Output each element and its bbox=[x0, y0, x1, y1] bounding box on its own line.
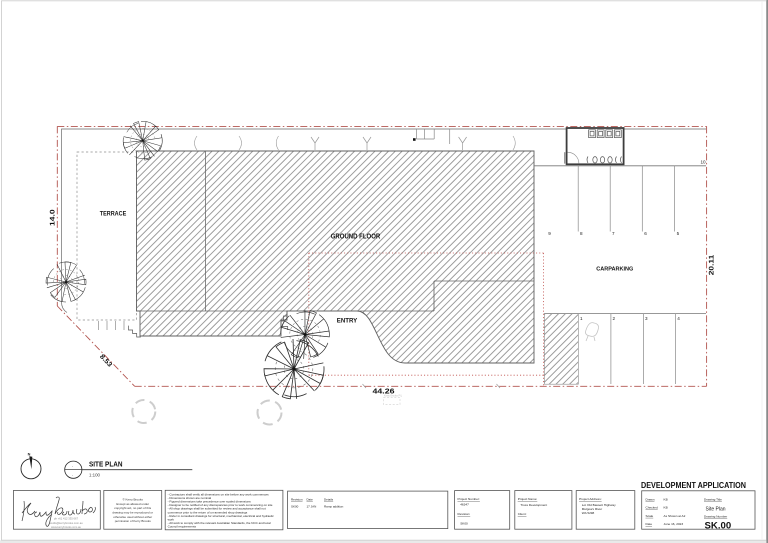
svg-text:ph +61 412 335 667: ph +61 412 335 667 bbox=[54, 517, 78, 521]
svg-text:10: 10 bbox=[701, 159, 707, 164]
svg-text:5: 5 bbox=[677, 231, 680, 236]
svg-text:20.11: 20.11 bbox=[709, 254, 716, 275]
svg-text:KB: KB bbox=[664, 506, 668, 510]
svg-text:Project Name:: Project Name: bbox=[518, 497, 538, 501]
svg-text:Truss Development: Truss Development bbox=[520, 503, 547, 507]
svg-text:Drawing Title: Drawing Title bbox=[704, 497, 722, 501]
svg-text:Client:: Client: bbox=[518, 512, 527, 516]
svg-text:Site Plan: Site Plan bbox=[706, 507, 726, 513]
svg-text:Ramp addition: Ramp addition bbox=[324, 504, 344, 508]
svg-text:-: - bbox=[72, 464, 73, 468]
svg-text:8: 8 bbox=[580, 231, 583, 236]
svg-text:Details: Details bbox=[324, 497, 334, 501]
svg-text:4: 4 bbox=[677, 316, 680, 321]
svg-text:KB: KB bbox=[664, 498, 668, 502]
svg-text:SK00: SK00 bbox=[291, 504, 299, 508]
svg-text:ENTRY: ENTRY bbox=[337, 317, 358, 324]
svg-text:June 16, 2023: June 16, 2023 bbox=[664, 522, 684, 526]
svg-text:- Refer in consultant drawings: - Refer in consultant drawings for struc… bbox=[168, 514, 275, 518]
svg-text:Scale: Scale bbox=[646, 514, 654, 518]
svg-text:46347: 46347 bbox=[460, 503, 469, 507]
svg-text:Project Number:: Project Number: bbox=[458, 497, 480, 501]
svg-text:1: 1 bbox=[580, 316, 583, 321]
svg-text:studio@kerrybrooks.com.au: studio@kerrybrooks.com.au bbox=[49, 521, 83, 525]
svg-text:N: N bbox=[28, 453, 31, 457]
svg-text:Council requirements: Council requirements bbox=[168, 525, 197, 529]
svg-text:2: 2 bbox=[613, 316, 616, 321]
svg-text:GROUND FLOOR: GROUND FLOOR bbox=[331, 233, 381, 240]
svg-text:14.0: 14.0 bbox=[49, 209, 56, 226]
svg-text:7: 7 bbox=[612, 231, 615, 236]
svg-text:Date: Date bbox=[646, 522, 653, 526]
svg-text:3: 3 bbox=[645, 316, 648, 321]
svg-text:Drawn: Drawn bbox=[646, 498, 655, 502]
svg-text:Revision: Revision bbox=[291, 497, 303, 501]
svg-text:Drawing Number: Drawing Number bbox=[704, 515, 727, 519]
svg-text:Date: Date bbox=[307, 497, 314, 501]
svg-text:SK00: SK00 bbox=[460, 522, 468, 526]
svg-text:1:100: 1:100 bbox=[89, 473, 101, 478]
svg-text:As Shown at A2: As Shown at A2 bbox=[664, 514, 686, 518]
svg-text:DEVELOPMENT APPLICATION: DEVELOPMENT APPLICATION bbox=[641, 481, 746, 490]
svg-text:-: - bbox=[72, 473, 73, 477]
svg-text:17 JAN: 17 JAN bbox=[307, 504, 317, 508]
svg-text:WA 5298: WA 5298 bbox=[582, 511, 595, 515]
svg-text:TERRACE: TERRACE bbox=[100, 210, 127, 217]
svg-text:permission of Kerry Brooks: permission of Kerry Brooks bbox=[115, 519, 152, 523]
svg-text:Revision:: Revision: bbox=[458, 512, 471, 516]
svg-text:www.kerrybrooks.com.au: www.kerrybrooks.com.au bbox=[51, 525, 82, 529]
svg-text:CARPARKING: CARPARKING bbox=[596, 267, 633, 273]
svg-text:6: 6 bbox=[644, 231, 647, 236]
svg-text:9: 9 bbox=[548, 231, 551, 236]
svg-text:SK.00: SK.00 bbox=[705, 521, 732, 532]
svg-text:SITE PLAN: SITE PLAN bbox=[89, 459, 123, 468]
svg-text:Kerry Brooks P/L: Kerry Brooks P/L bbox=[384, 394, 403, 397]
svg-text:Project Address:: Project Address: bbox=[579, 497, 602, 501]
svg-text:Checked: Checked bbox=[646, 506, 658, 510]
